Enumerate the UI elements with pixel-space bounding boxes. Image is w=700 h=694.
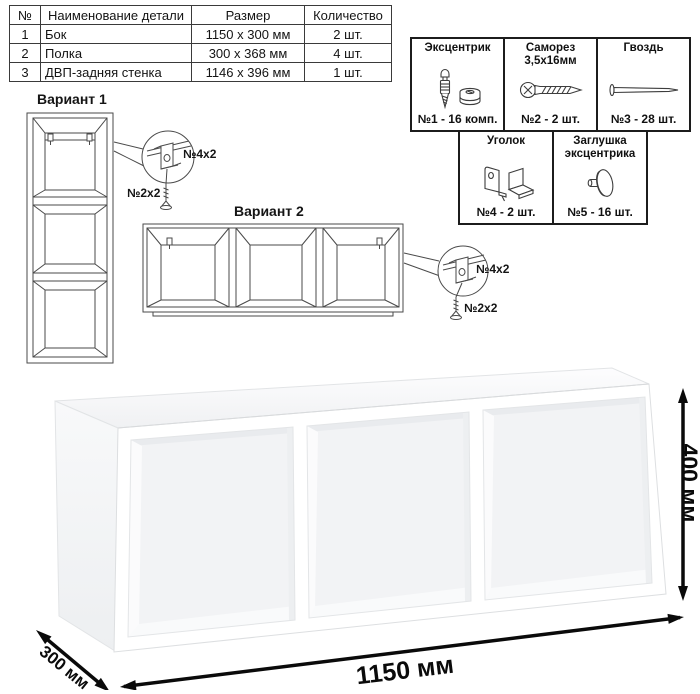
height-dimension-label: 400 мм <box>676 444 700 523</box>
variant1-screw-label: №2x2 <box>127 186 160 200</box>
variant2-screw-label: №2x2 <box>464 301 497 315</box>
shelf-opening-3 <box>483 397 652 600</box>
shelf-body <box>55 368 666 652</box>
shelf-left-face <box>55 401 118 651</box>
shelf-opening-1 <box>128 427 295 637</box>
variant1-title: Вариант 1 <box>37 91 107 107</box>
variant2-bracket-label: №4x2 <box>476 262 509 276</box>
variant2-title: Вариант 2 <box>234 203 304 219</box>
variant1-bracket-label: №4x2 <box>183 147 216 161</box>
shelf-opening-2 <box>307 412 471 618</box>
